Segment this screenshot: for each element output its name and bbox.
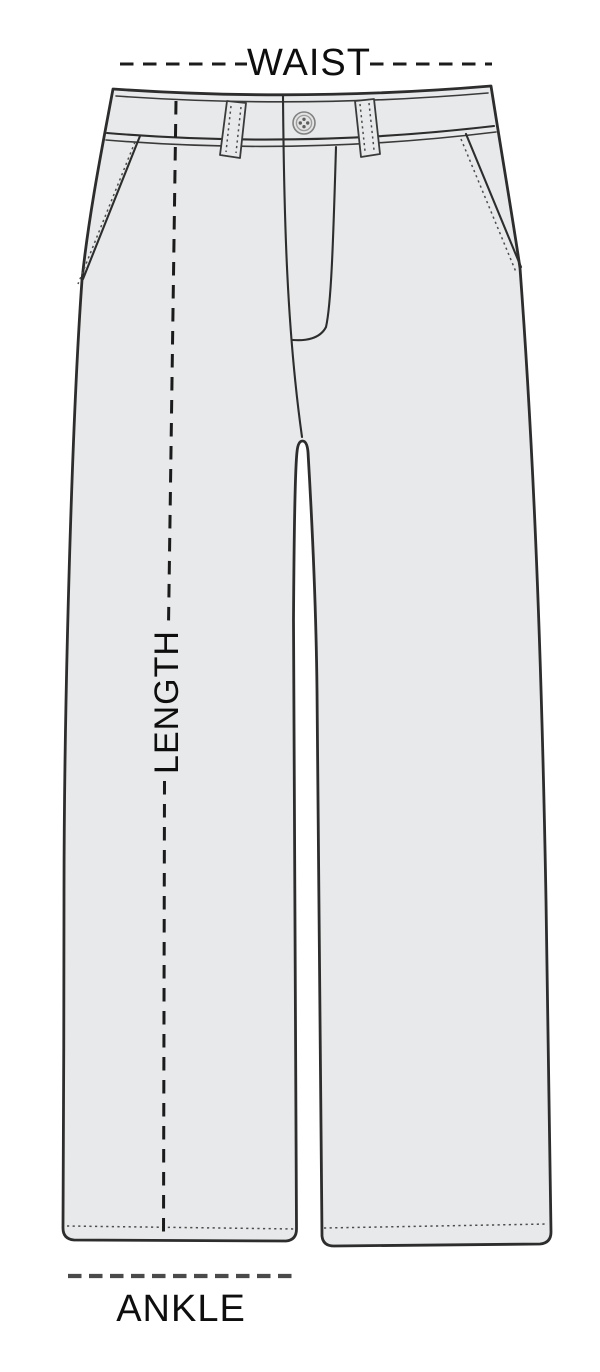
length-label: LENGTH [150, 630, 184, 774]
pants-silhouette [63, 86, 551, 1246]
waist-label: WAIST [247, 44, 371, 82]
waist-button-icon [293, 112, 315, 134]
ankle-label: ANKLE [116, 1290, 246, 1328]
pants-technical-drawing [0, 0, 600, 1372]
size-guide-diagram: WAIST LENGTH ANKLE [0, 0, 600, 1372]
